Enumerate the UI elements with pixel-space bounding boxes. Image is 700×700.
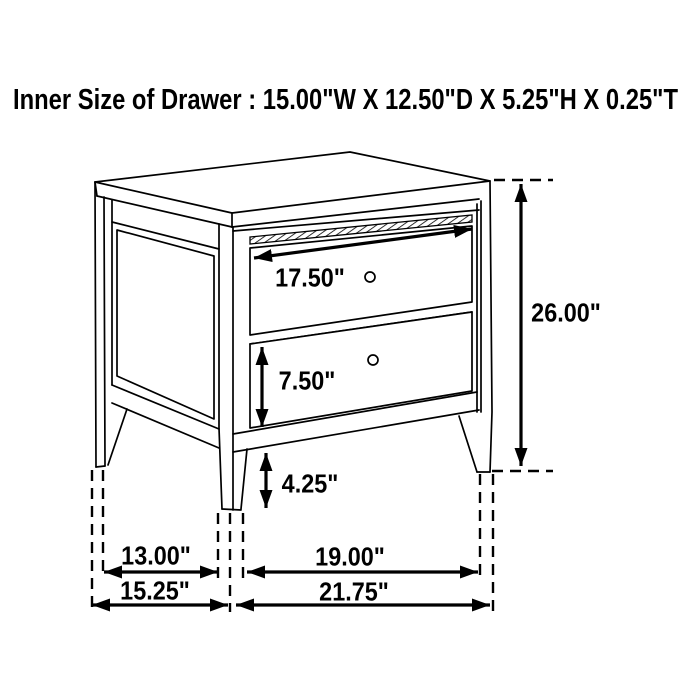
label-side-leg-spacing: 13.00" [121,541,191,572]
diagram-page: Inner Size of Drawer : 15.00"W X 12.50"D… [0,0,700,700]
label-front-leg-spacing: 19.00" [315,542,385,573]
left-side-panel [95,182,219,467]
label-overall-depth: 15.25" [120,576,190,607]
label-overall-height: 26.00" [531,298,601,329]
label-top-drawer-width: 17.50" [275,263,345,294]
label-overall-width: 21.75" [319,577,389,608]
label-bottom-drawer-height: 7.50" [279,366,336,397]
front-left-leg [219,224,247,510]
front-right-leg [459,416,490,472]
bottom-drawer-knob [368,355,378,365]
page-title: Inner Size of Drawer : 15.00"W X 12.50"D… [13,84,678,117]
label-leg-height: 4.25" [282,469,339,500]
nightstand-drawing [95,152,492,510]
top-drawer-knob [365,272,375,282]
